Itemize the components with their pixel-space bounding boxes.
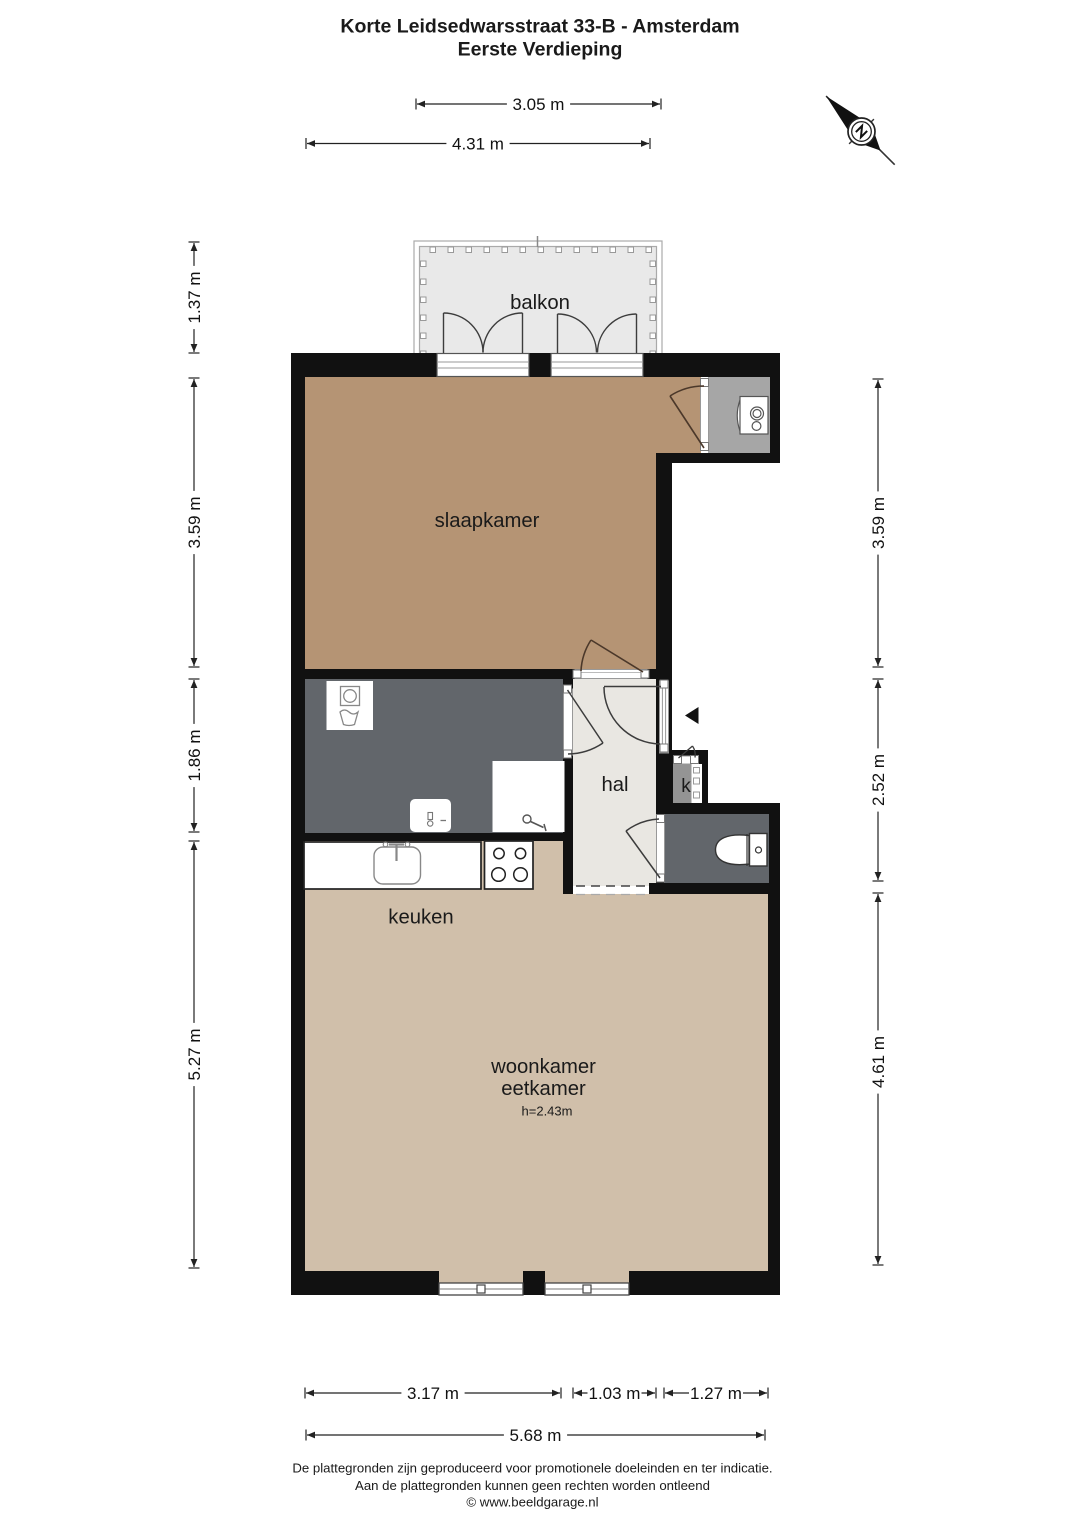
- svg-text:hal: hal: [601, 774, 628, 796]
- svg-text:3.59 m: 3.59 m: [185, 497, 204, 549]
- svg-text:eetkamer: eetkamer: [501, 1078, 586, 1100]
- svg-text:3.59 m: 3.59 m: [869, 497, 888, 549]
- svg-text:4.61 m: 4.61 m: [869, 1036, 888, 1088]
- svg-text:Eerste Verdieping: Eerste Verdieping: [458, 39, 623, 61]
- svg-text:5.27 m: 5.27 m: [185, 1029, 204, 1081]
- svg-text:3.17 m: 3.17 m: [407, 1384, 459, 1403]
- svg-text:h=2.43m: h=2.43m: [522, 1104, 573, 1119]
- svg-text:5.68 m: 5.68 m: [510, 1426, 562, 1445]
- svg-text:woonkamer: woonkamer: [490, 1056, 596, 1078]
- svg-text:Korte Leidsedwarsstraat 33-B -: Korte Leidsedwarsstraat 33-B - Amsterdam: [340, 16, 739, 38]
- svg-text:3.05 m: 3.05 m: [513, 95, 565, 114]
- svg-text:© www.beeldgarage.nl: © www.beeldgarage.nl: [466, 1495, 598, 1510]
- svg-text:1.27 m: 1.27 m: [690, 1384, 742, 1403]
- svg-text:1.86 m: 1.86 m: [185, 730, 204, 782]
- svg-text:balkon: balkon: [510, 292, 570, 314]
- svg-text:slaapkamer: slaapkamer: [435, 510, 540, 532]
- svg-text:De plattegronden zijn geproduc: De plattegronden zijn geproduceerd voor …: [292, 1461, 772, 1476]
- svg-text:keuken: keuken: [388, 907, 453, 929]
- svg-text:1.03 m: 1.03 m: [589, 1384, 641, 1403]
- svg-text:2.52 m: 2.52 m: [869, 754, 888, 806]
- svg-text:Aan de plattegronden kunnen ge: Aan de plattegronden kunnen geen rechten…: [355, 1478, 710, 1493]
- svg-text:1.37 m: 1.37 m: [185, 272, 204, 324]
- svg-text:k: k: [681, 776, 691, 797]
- svg-text:4.31 m: 4.31 m: [452, 135, 504, 154]
